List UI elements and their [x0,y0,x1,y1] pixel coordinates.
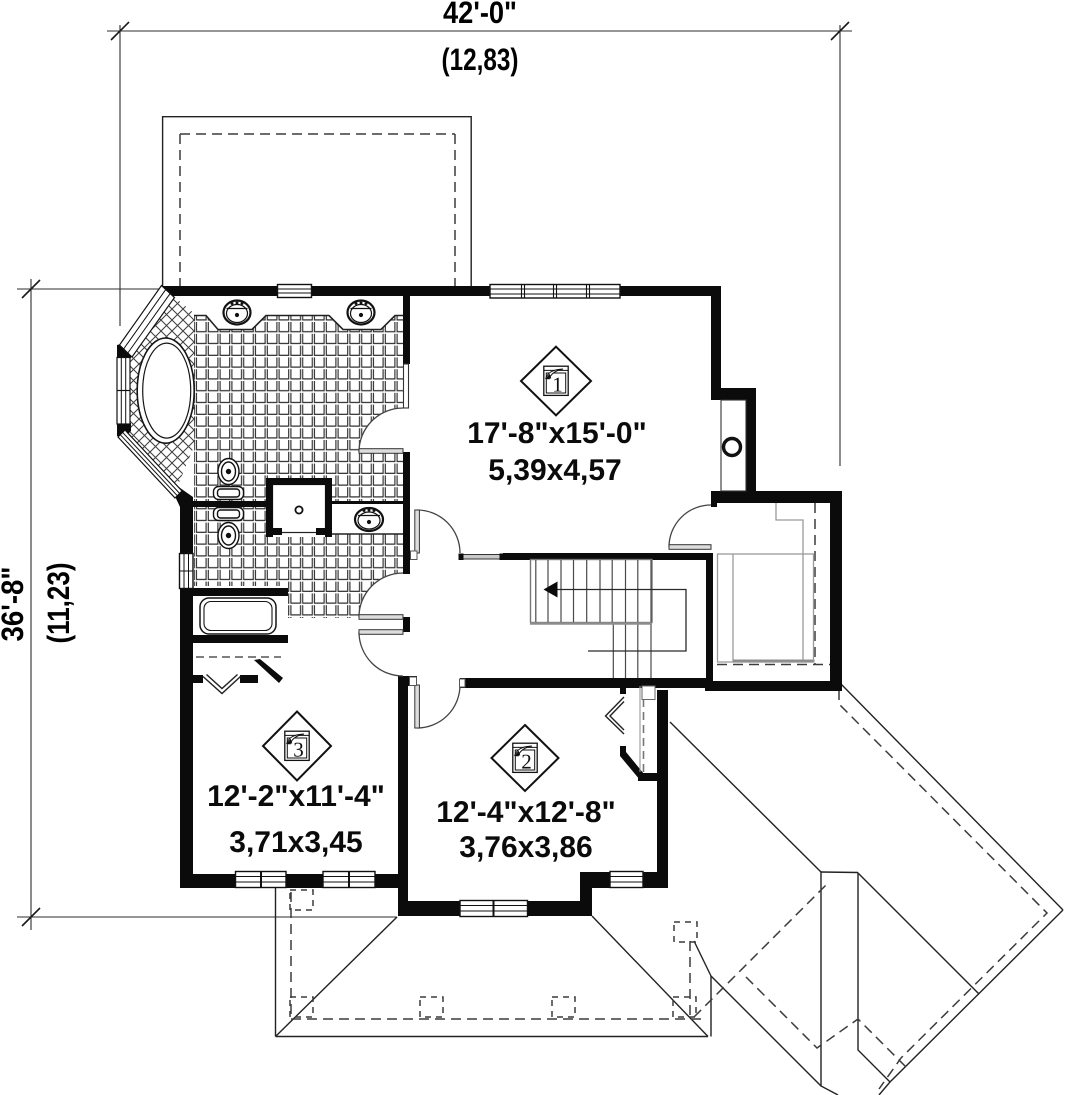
svg-text:1: 1 [552,373,563,397]
svg-text:5,39x4,57: 5,39x4,57 [488,454,621,487]
svg-text:36'-8": 36'-8" [0,567,30,642]
svg-text:3,71x3,45: 3,71x3,45 [229,826,362,859]
svg-text:17'-8"x15'-0": 17'-8"x15'-0" [467,417,647,450]
svg-text:12'-4"x12'-8": 12'-4"x12'-8" [436,796,616,829]
svg-text:3,76x3,86: 3,76x3,86 [459,831,592,864]
svg-text:2: 2 [521,750,532,774]
svg-text:42'-0": 42'-0" [443,0,517,30]
svg-text:12'-2"x11'-4": 12'-2"x11'-4" [207,780,385,813]
svg-text:(12,83): (12,83) [442,42,519,77]
svg-text:3: 3 [293,738,304,762]
svg-text:(11,23): (11,23) [41,563,76,644]
